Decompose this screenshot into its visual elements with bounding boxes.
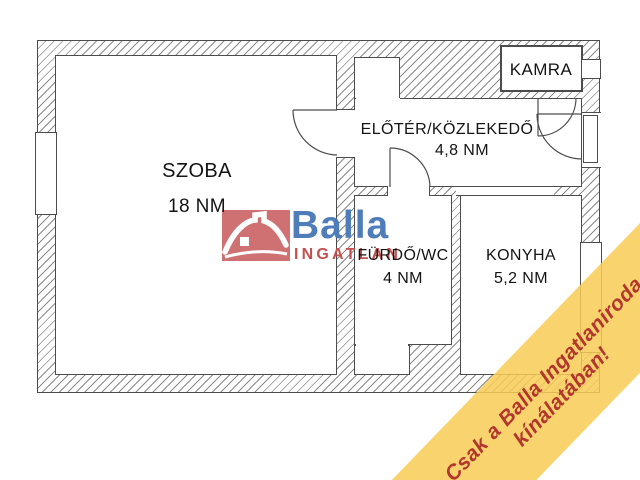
window-left	[35, 132, 57, 215]
label-szoba-area: 18 NM	[168, 196, 226, 218]
door-opening-furdo	[387, 186, 430, 196]
floorplan-image: Balla INGATLAN SZOBA 18 NM ELŐTÉR/KÖZLEK…	[0, 0, 640, 480]
door-opening-szoba	[336, 109, 355, 158]
label-eloter: ELŐTÉR/KÖZLEKEDŐ	[361, 121, 534, 139]
furdo-seam-patch	[356, 344, 408, 374]
thin-wall-konyha	[456, 186, 554, 196]
label-furdo-area: 4 NM	[383, 270, 423, 288]
label-szoba: SZOBA	[162, 160, 232, 183]
window-kamra	[581, 59, 601, 79]
eloter-seam-patch	[356, 98, 400, 186]
balla-logo-house-icon	[222, 210, 290, 261]
label-konyha-area: 5,2 NM	[494, 270, 548, 288]
logo-brand-text: Balla	[291, 206, 389, 246]
label-kamra: KAMRA	[510, 60, 572, 80]
label-konyha: KONYHA	[486, 247, 556, 265]
label-furdo: FÜRDŐ/WC	[357, 247, 448, 265]
label-eloter-area: 4,8 NM	[435, 142, 489, 160]
entrance-door-panel	[583, 115, 598, 163]
